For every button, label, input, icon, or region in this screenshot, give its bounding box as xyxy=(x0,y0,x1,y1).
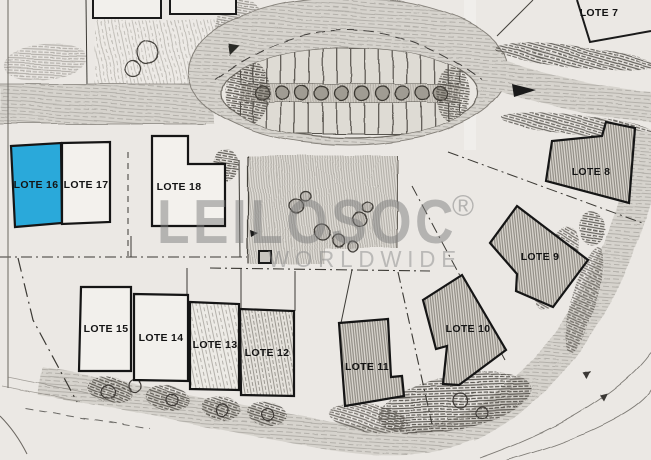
lot-label-lote-11: LOTE 11 xyxy=(345,361,389,373)
lot-label-lote-12: LOTE 12 xyxy=(245,347,290,359)
lot-label-lote-9: LOTE 9 xyxy=(521,251,560,263)
lot-label-lote-7: LOTE 7 xyxy=(580,7,619,19)
lot-label-lote-16: LOTE 16 xyxy=(14,179,59,191)
parking-area xyxy=(226,48,470,134)
site-plan-page: LOTE 7 LOTE 8 LOTE 9 LOTE 10 LOTE 11 LOT… xyxy=(0,0,651,460)
roundabout-oval xyxy=(188,0,508,145)
watermark-subtitle: WORLDWIDE xyxy=(268,246,462,272)
road-west xyxy=(0,84,214,124)
tree-below-lote8 xyxy=(579,211,605,245)
lot-label-lote-17: LOTE 17 xyxy=(64,179,109,191)
site-plan-svg: LOTE 7 LOTE 8 LOTE 9 LOTE 10 LOTE 11 LOT… xyxy=(0,0,651,460)
lot-label-lote-10: LOTE 10 xyxy=(446,323,491,335)
lot-label-lote-15: LOTE 15 xyxy=(84,323,129,335)
watermark-registered-icon: ® xyxy=(452,190,474,223)
lot-label-lote-8: LOTE 8 xyxy=(572,166,611,178)
lot-label-lote-13: LOTE 13 xyxy=(193,339,238,351)
lot-label-lote-14: LOTE 14 xyxy=(139,332,184,344)
